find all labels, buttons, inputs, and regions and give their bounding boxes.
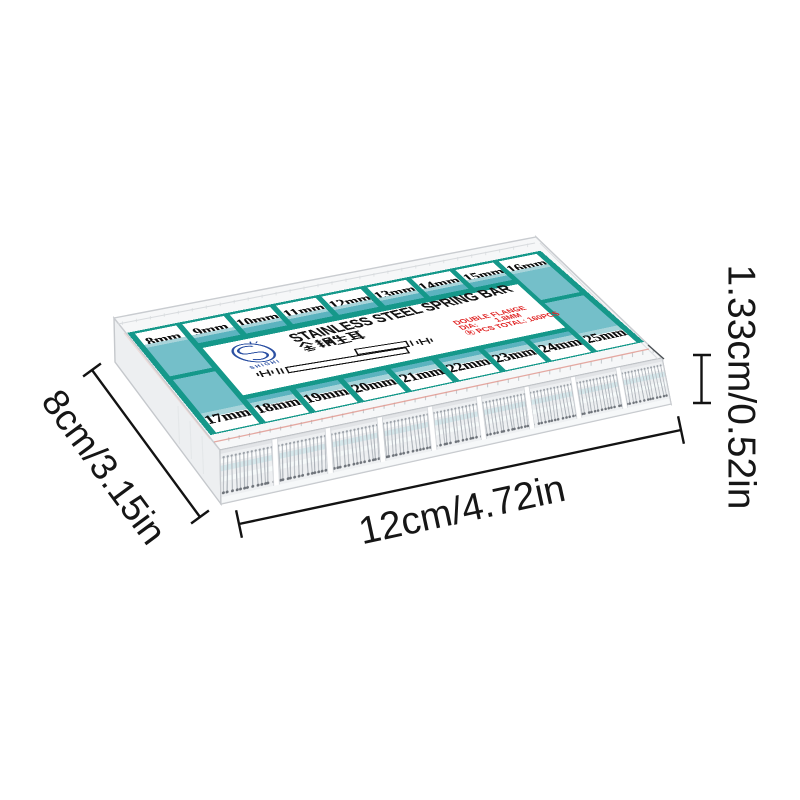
svg-text:1.33cm/0.52in: 1.33cm/0.52in xyxy=(720,265,763,510)
svg-text:12cm/4.72in: 12cm/4.72in xyxy=(355,467,569,553)
svg-text:8cm/3.15in: 8cm/3.15in xyxy=(34,382,175,552)
